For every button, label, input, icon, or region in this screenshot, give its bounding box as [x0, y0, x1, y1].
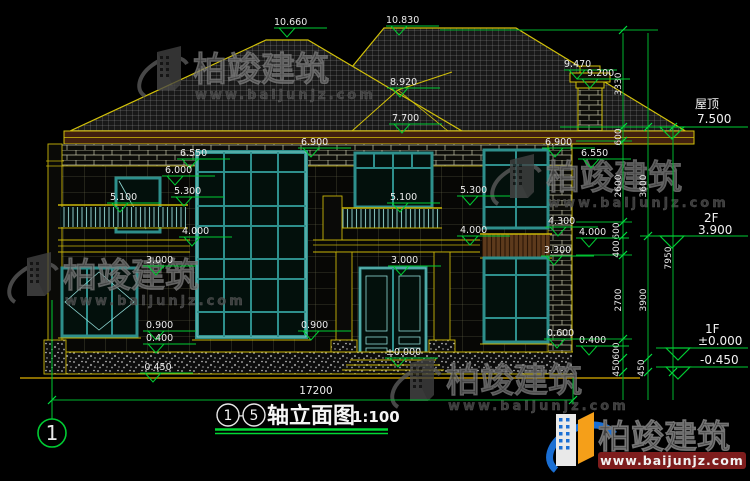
drawing-title: 1 - 5 轴立面图 1:100: [215, 403, 400, 434]
right-1f-window: [480, 258, 552, 344]
marker-value: 0.400: [579, 335, 606, 346]
dim-a6: 450: [612, 359, 622, 376]
corner-pilaster: [48, 144, 62, 352]
marker-value: 6.550: [581, 148, 608, 159]
watermark-bottom: [392, 357, 629, 414]
dim-a3: 400: [612, 240, 622, 257]
dim-a2: 600: [612, 222, 622, 239]
marker-value: 0.400: [146, 333, 173, 344]
marker-value: 6.900: [545, 137, 572, 148]
marker-value: 5.300: [460, 185, 487, 196]
marker-value: 0.600: [547, 328, 574, 339]
marker-value: 4.300: [548, 216, 575, 227]
marker-value: 6.900: [301, 137, 328, 148]
marker-value: 6.550: [180, 148, 207, 159]
f1-level: ±0.000: [698, 334, 742, 348]
marker-value: 9.200: [587, 68, 614, 79]
right-wood-railing: [480, 234, 552, 258]
logo-url: www.baijunjz.com: [600, 453, 744, 468]
marker-value: 3.000: [146, 255, 173, 266]
dim-a4: 2700: [614, 288, 624, 311]
marker-value: 0.900: [301, 320, 328, 331]
marker-value: 7.700: [392, 113, 419, 124]
marker-value: 5.100: [390, 192, 417, 203]
marker-value: 4.000: [182, 226, 209, 237]
marker-value: 10.830: [386, 15, 419, 26]
eave-fascia: [64, 131, 694, 144]
curtain-wall-window: [192, 152, 311, 340]
marker-value: 4.000: [579, 227, 606, 238]
dim-overall-height: 7950: [664, 246, 674, 269]
dim-a0: 600: [614, 128, 624, 145]
dim-roof-rise: 3330: [614, 72, 624, 95]
dim-a5: 600: [612, 342, 622, 359]
f1-below-level: -0.450: [700, 353, 739, 367]
marker-value: ±0.000: [386, 347, 421, 358]
marker-value: 8.920: [390, 77, 417, 88]
marker-value: 6.000: [165, 165, 192, 176]
cad-elevation-drawing: 柏竣建筑 www.baijunjz.com: [0, 0, 750, 481]
dim-b2: 450: [637, 359, 647, 376]
f2-level: 3.900: [698, 223, 732, 237]
title-axis-from: 1: [224, 408, 233, 424]
marker-value: 5.100: [110, 192, 137, 203]
title-axis-to: 5: [250, 408, 259, 424]
dim-b1: 3900: [639, 288, 649, 311]
roof-level: 7.500: [697, 112, 731, 126]
total-width-value: 17200: [299, 385, 332, 397]
marker-value: 10.660: [274, 17, 307, 28]
marker-value: 5.300: [174, 186, 201, 197]
marker-value: 3.000: [391, 255, 418, 266]
title-name: 轴立面图: [267, 403, 355, 429]
drawing-canvas: 柏竣建筑 www.baijunjz.com: [0, 0, 750, 481]
dim-b0: 3600: [639, 174, 649, 197]
marker-value: -0.450: [141, 362, 172, 373]
company-logo: 柏竣建筑 www.baijunjz.com: [550, 412, 746, 470]
axis-bubble-number: 1: [46, 421, 59, 445]
marker-value: 4.000: [460, 225, 487, 236]
marker-value: 3.300: [544, 245, 571, 256]
title-scale: 1:100: [352, 408, 400, 426]
logo-brand: 柏竣建筑: [598, 417, 730, 456]
roof-label: 屋顶: [695, 97, 719, 111]
marker-value: 0.900: [146, 320, 173, 331]
dim-a1: 2600: [614, 174, 624, 197]
